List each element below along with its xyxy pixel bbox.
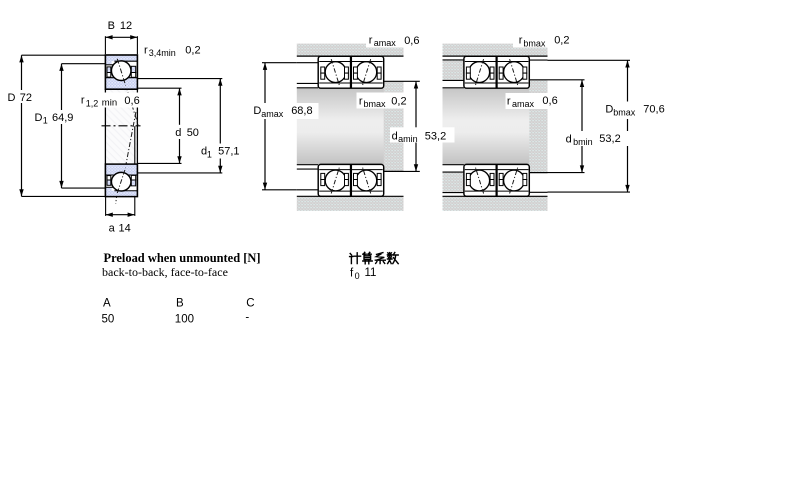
- svg-text:amax: amax: [512, 99, 535, 109]
- svg-text:r: r: [81, 95, 85, 107]
- svg-text:53,2: 53,2: [599, 133, 620, 145]
- svg-text:d: d: [566, 133, 572, 145]
- svg-text:a: a: [109, 222, 116, 234]
- svg-text:C: C: [246, 297, 254, 309]
- svg-text:72: 72: [20, 92, 32, 104]
- svg-text:3,4min: 3,4min: [149, 48, 176, 58]
- svg-text:1: 1: [207, 149, 212, 159]
- svg-text:50: 50: [102, 314, 115, 326]
- svg-text:70,6: 70,6: [643, 103, 664, 115]
- svg-text:12: 12: [120, 20, 132, 32]
- svg-text:11: 11: [365, 267, 377, 279]
- svg-text:0,6: 0,6: [124, 95, 139, 107]
- svg-text:amax: amax: [374, 38, 397, 48]
- svg-text:amin: amin: [398, 134, 418, 144]
- svg-text:64,9: 64,9: [52, 112, 73, 124]
- svg-text:0,6: 0,6: [542, 95, 557, 107]
- svg-text:53,2: 53,2: [425, 130, 446, 142]
- svg-text:0,2: 0,2: [185, 45, 200, 57]
- svg-text:1: 1: [43, 115, 48, 125]
- svg-text:-: -: [245, 312, 249, 324]
- svg-text:D: D: [253, 105, 261, 117]
- svg-text:bmax: bmax: [523, 38, 546, 48]
- svg-text:1,2: 1,2: [86, 98, 99, 108]
- svg-text:r: r: [507, 95, 511, 107]
- svg-text:0,6: 0,6: [404, 35, 419, 47]
- svg-text:bmax: bmax: [613, 107, 636, 117]
- svg-text:bmin: bmin: [573, 137, 593, 147]
- svg-text:D: D: [35, 112, 43, 124]
- svg-text:d: d: [175, 127, 181, 139]
- svg-text:B: B: [176, 297, 184, 309]
- svg-text:r: r: [144, 44, 148, 56]
- svg-text:68,8: 68,8: [291, 105, 312, 117]
- svg-text:d: d: [392, 131, 398, 143]
- svg-text:min: min: [102, 98, 117, 109]
- svg-text:57,1: 57,1: [218, 146, 239, 158]
- svg-text:A: A: [103, 297, 111, 309]
- svg-text:r: r: [369, 34, 373, 46]
- svg-text:0: 0: [355, 271, 360, 281]
- svg-text:14: 14: [119, 222, 131, 234]
- svg-text:0,2: 0,2: [554, 34, 569, 46]
- svg-text:D: D: [605, 104, 613, 116]
- svg-text:0,2: 0,2: [391, 96, 406, 108]
- svg-text:50: 50: [187, 127, 199, 139]
- svg-text:amax: amax: [261, 109, 284, 119]
- svg-text:B: B: [108, 20, 115, 32]
- svg-text:bmax: bmax: [364, 99, 387, 109]
- svg-text:r: r: [359, 95, 363, 107]
- svg-text:D: D: [8, 92, 16, 104]
- svg-text:Preload when unmounted [N]: Preload when unmounted [N]: [104, 251, 261, 265]
- svg-text:back-to-back, face-to-face: back-to-back, face-to-face: [102, 265, 228, 279]
- svg-text:100: 100: [175, 314, 194, 326]
- svg-text:r: r: [519, 35, 523, 47]
